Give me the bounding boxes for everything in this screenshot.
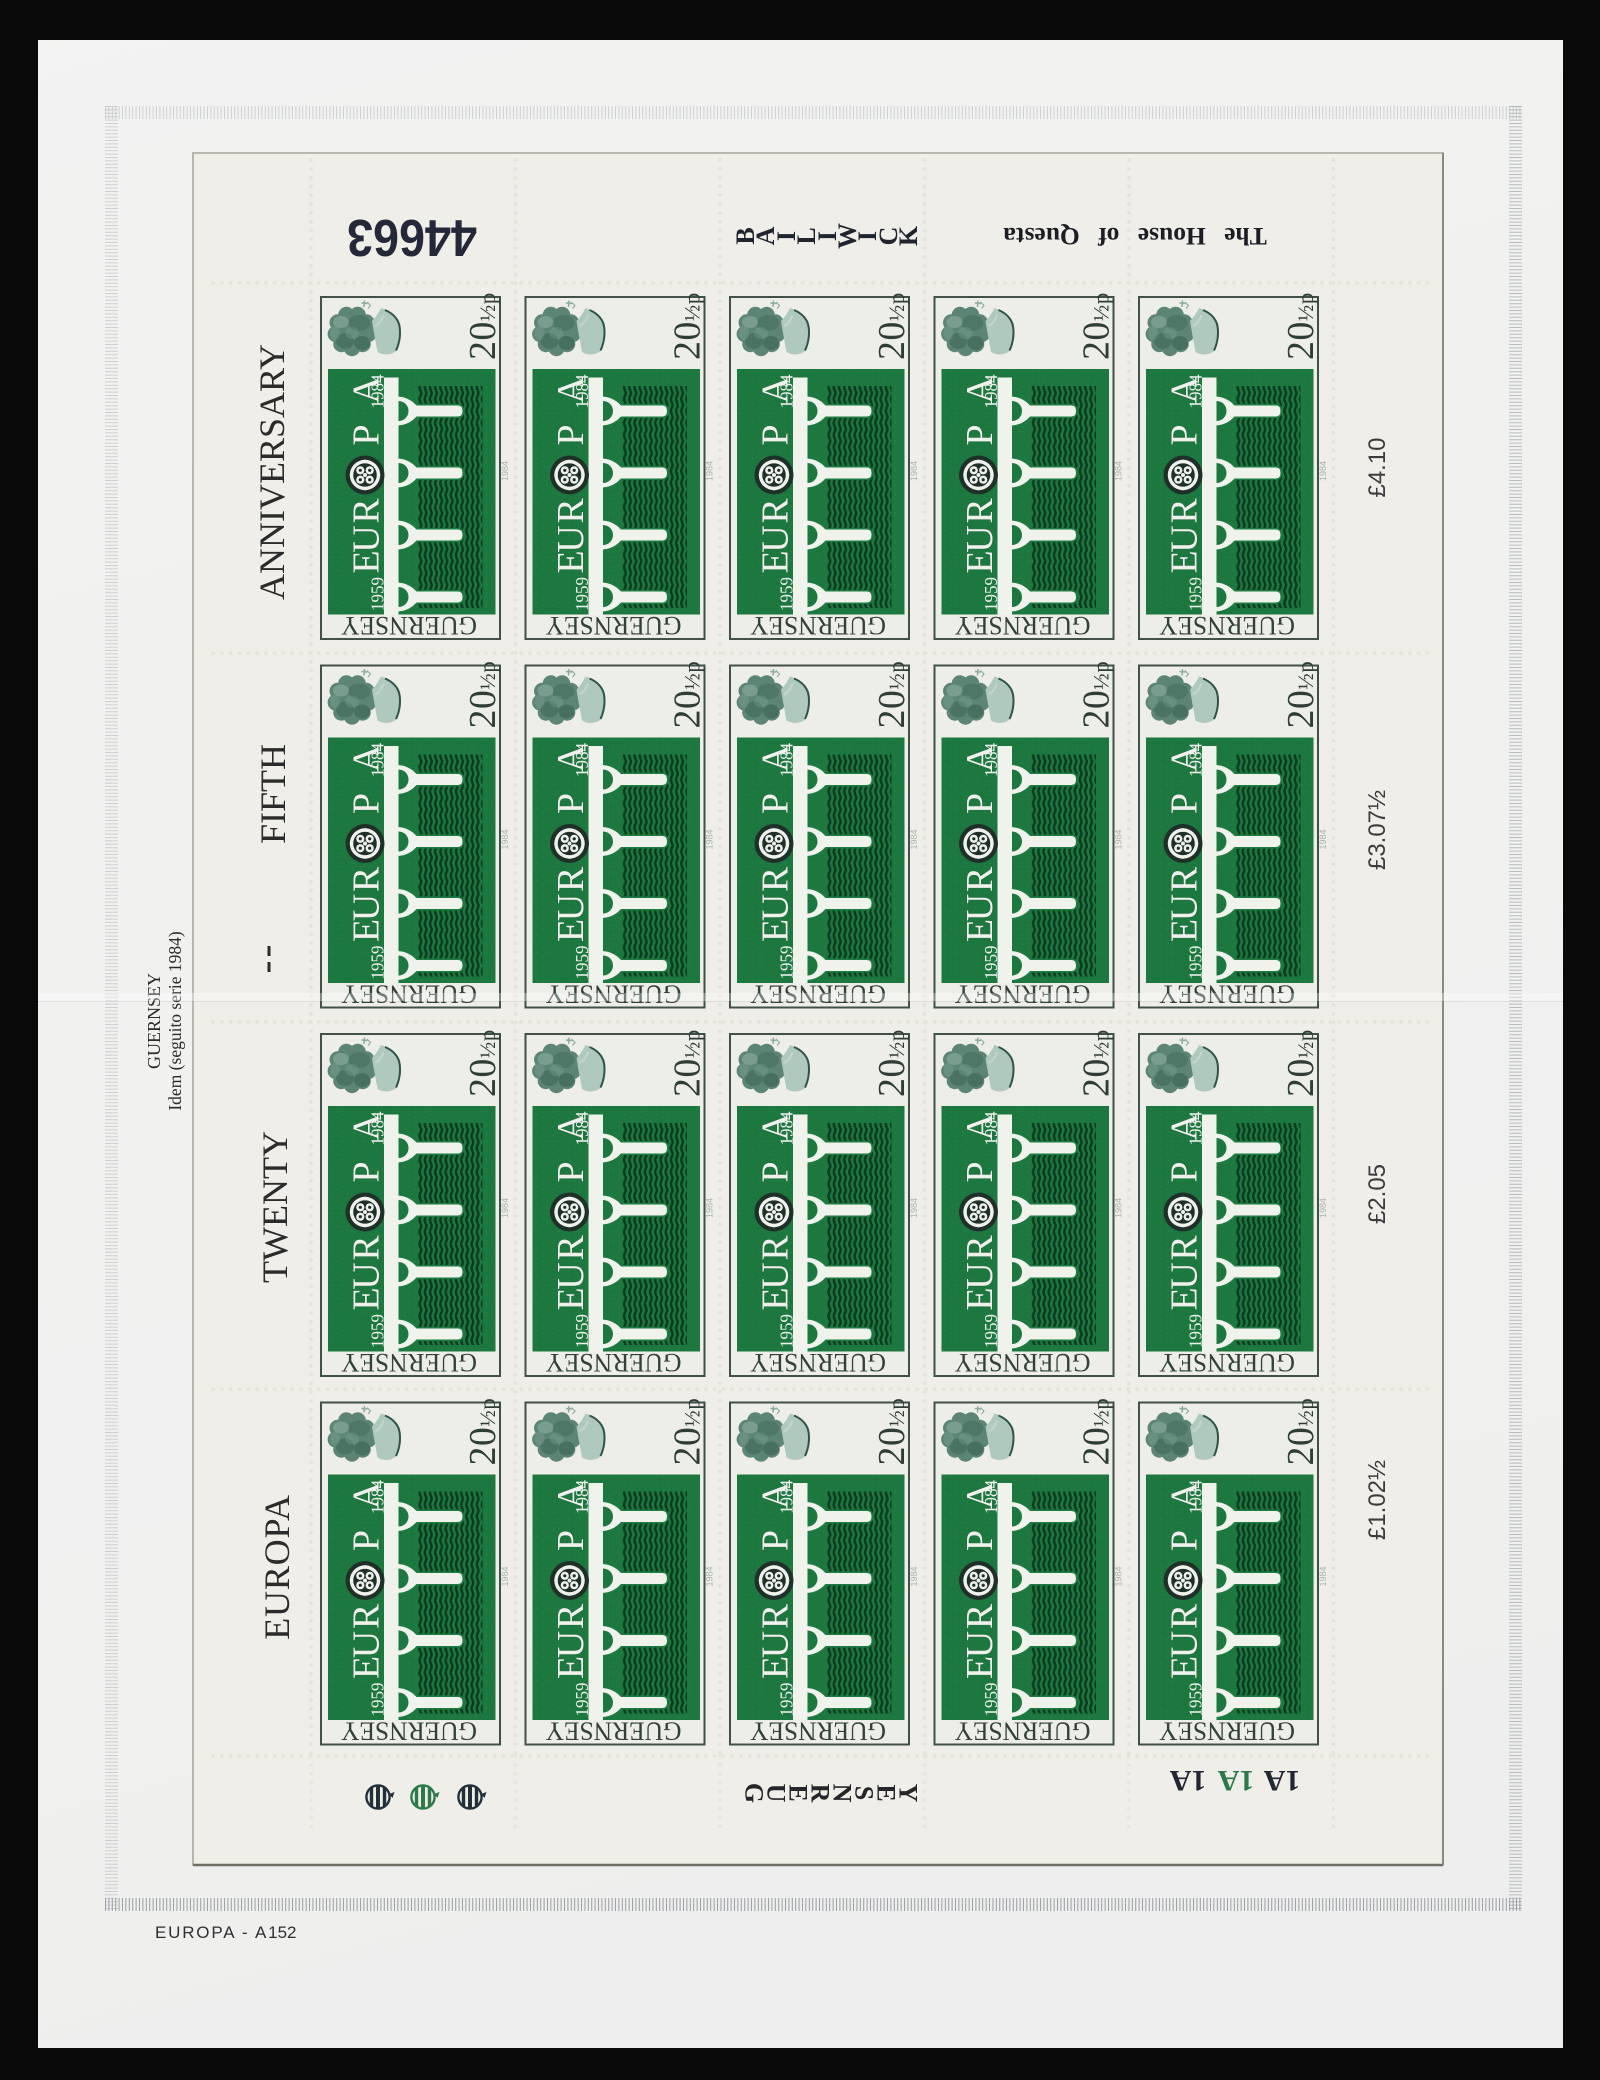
svg-text:TWENTY: TWENTY — [255, 1131, 295, 1283]
svg-text:£4.10: £4.10 — [1364, 437, 1391, 497]
svg-text:1984: 1984 — [1318, 1198, 1328, 1218]
svg-text:1984: 1984 — [500, 1566, 510, 1586]
svg-text:GUERNSEY: GUERNSEY — [144, 973, 164, 1069]
svg-text:1984: 1984 — [909, 461, 919, 481]
svg-text:Y: Y — [894, 1784, 923, 1803]
svg-text:1984: 1984 — [1114, 461, 1124, 481]
svg-text:1984: 1984 — [1114, 1566, 1124, 1586]
svg-text:EUROPA: EUROPA — [257, 1494, 297, 1640]
svg-text:Idem (seguito serie 1984): Idem (seguito serie 1984) — [165, 931, 185, 1110]
svg-text:1984: 1984 — [909, 1566, 919, 1586]
svg-text:ANNIVERSARY: ANNIVERSARY — [252, 344, 292, 600]
svg-text:1984: 1984 — [705, 461, 715, 481]
svg-text:£2.05: £2.05 — [1364, 1164, 1391, 1224]
svg-text:1984: 1984 — [705, 1198, 715, 1218]
svg-text:1984: 1984 — [500, 1198, 510, 1218]
svg-text:£1.02½: £1.02½ — [1364, 1460, 1391, 1540]
svg-text:1984: 1984 — [909, 829, 919, 849]
svg-text:1984: 1984 — [705, 1566, 715, 1586]
svg-text:1984: 1984 — [909, 1198, 919, 1218]
svg-text:1A: 1A — [1263, 1764, 1300, 1797]
svg-text:The House of Questa: The House of Questa — [1003, 222, 1267, 251]
svg-text:FIFTH: FIFTH — [253, 744, 293, 844]
svg-text:1A: 1A — [1217, 1764, 1254, 1797]
svg-text:1984: 1984 — [1318, 461, 1328, 481]
svg-text:EUROPA - A152: EUROPA - A152 — [155, 1923, 296, 1942]
svg-text:£3.07½: £3.07½ — [1364, 790, 1391, 870]
svg-text:K: K — [894, 225, 923, 246]
svg-text:1984: 1984 — [500, 461, 510, 481]
svg-text:1984: 1984 — [705, 829, 715, 849]
svg-text:1984: 1984 — [1114, 1198, 1124, 1218]
svg-text:1A: 1A — [1169, 1764, 1206, 1797]
svg-text:1984: 1984 — [1114, 829, 1124, 849]
svg-text:1984: 1984 — [500, 829, 510, 849]
svg-text:1984: 1984 — [1318, 829, 1328, 849]
svg-text:1984: 1984 — [1318, 1566, 1328, 1586]
svg-text:44663: 44663 — [347, 208, 477, 266]
